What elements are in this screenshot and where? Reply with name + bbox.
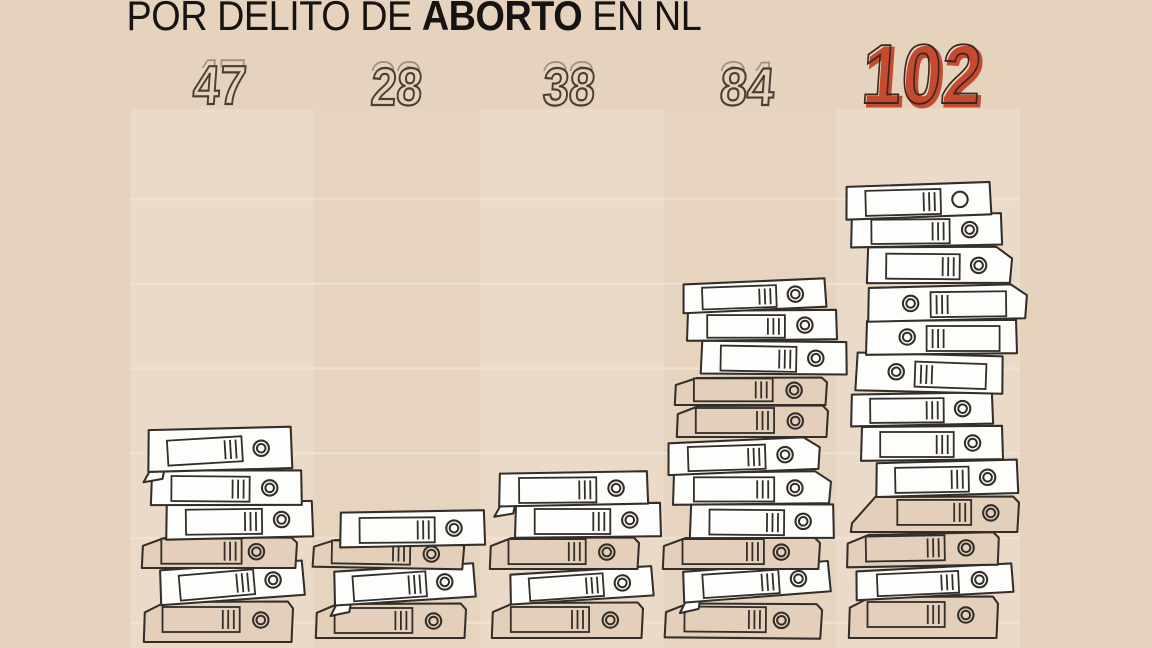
svg-text:38: 38 (541, 58, 597, 117)
svg-text:102: 102 (859, 27, 985, 121)
svg-text:28: 28 (369, 58, 424, 117)
svg-text:84: 84 (718, 58, 777, 117)
svg-text:POR DELITO DE ABORTO EN NL: POR DELITO DE ABORTO EN NL (127, 0, 702, 39)
svg-text:47: 47 (191, 54, 248, 116)
